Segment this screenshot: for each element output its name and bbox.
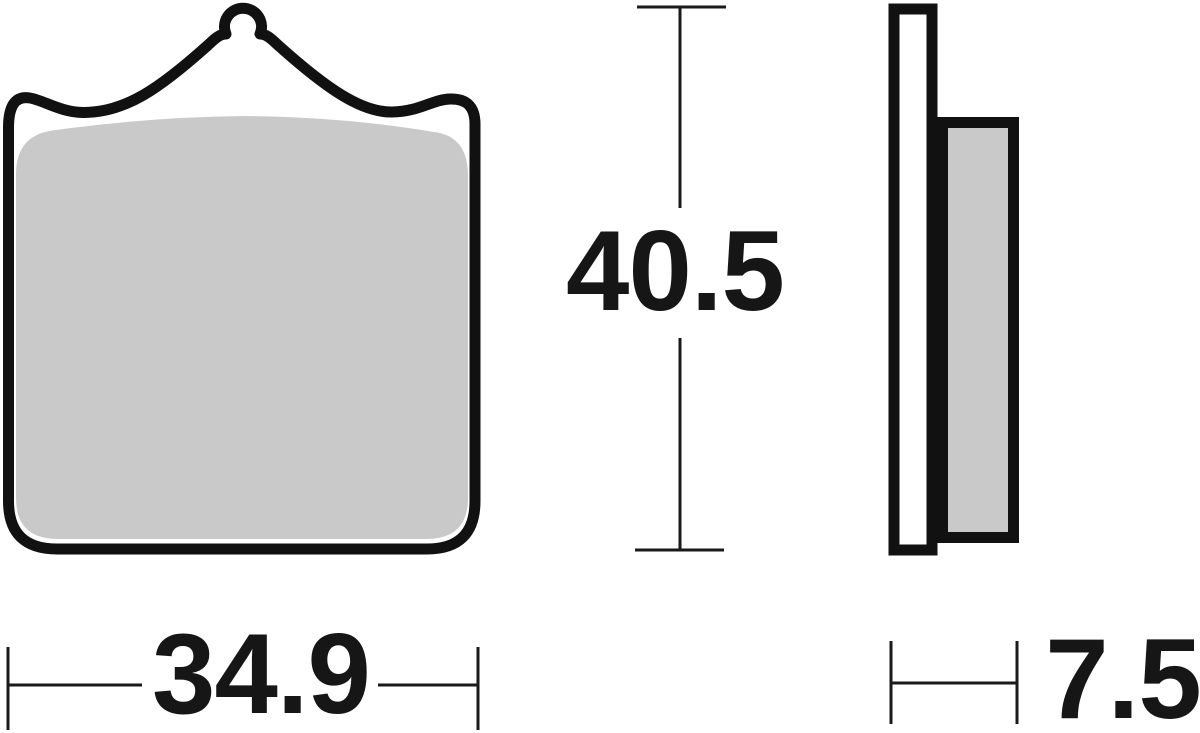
side-view-friction-material <box>943 123 1014 538</box>
front-view <box>9 8 476 549</box>
side-view <box>894 9 1014 550</box>
width-dimension-label: 34.9 <box>152 618 370 732</box>
thickness-dimension <box>891 641 1017 724</box>
brake-pad-dimension-diagram: 40.5 34.9 7.5 <box>0 0 1200 733</box>
height-dimension-label: 40.5 <box>566 215 784 329</box>
thickness-dimension-label: 7.5 <box>1045 623 1200 733</box>
front-view-friction-material <box>16 116 468 539</box>
side-view-backplate <box>894 9 932 550</box>
